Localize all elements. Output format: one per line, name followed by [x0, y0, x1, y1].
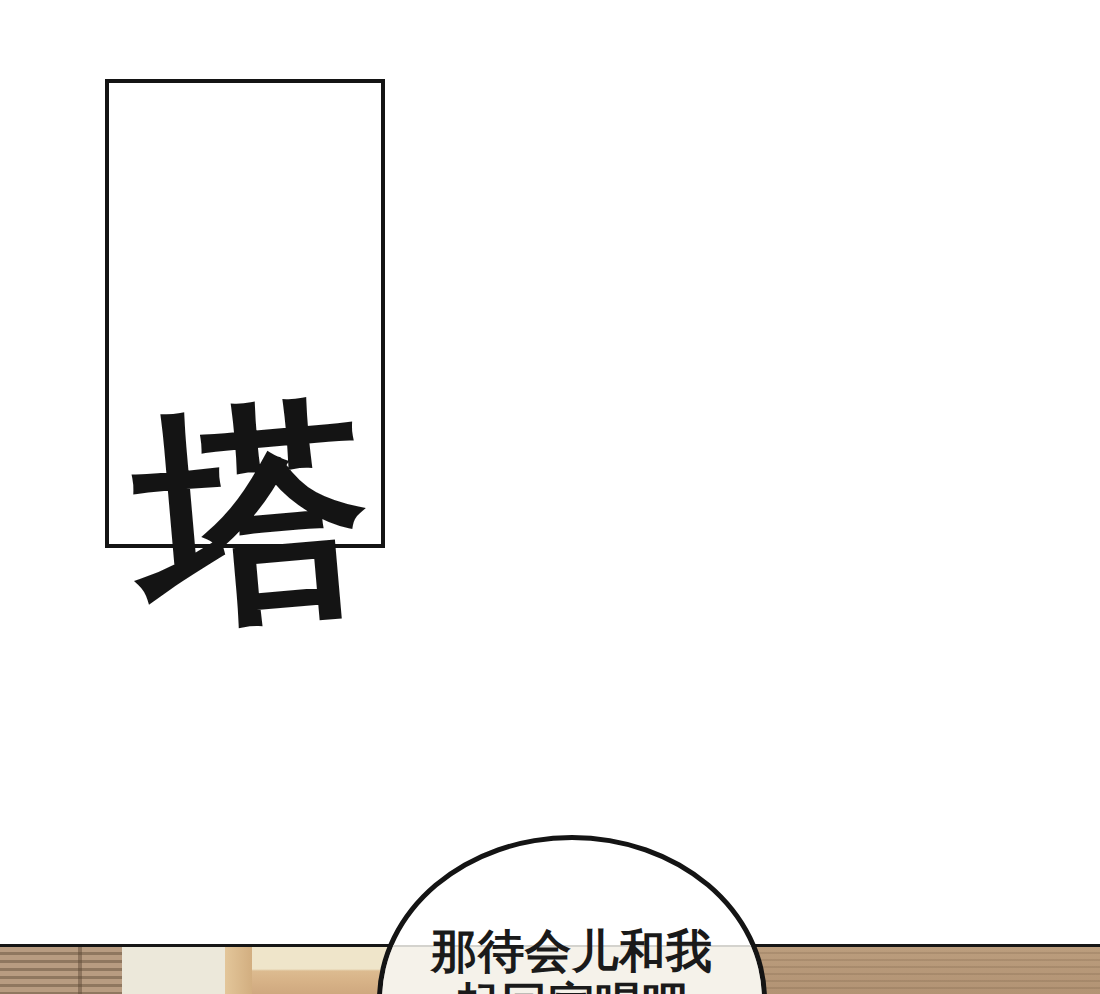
- sfx-text: 塔: [127, 391, 376, 640]
- wall-cream: [122, 947, 225, 994]
- dialogue-line-2: 起回家唱吧: [377, 978, 767, 994]
- wood-post: [225, 947, 252, 994]
- window-blinds: [0, 947, 122, 994]
- dialogue-text: 那待会儿和我 起回家唱吧: [377, 925, 767, 994]
- blinds-divider: [78, 947, 82, 994]
- dialogue-line-1: 那待会儿和我: [377, 925, 767, 978]
